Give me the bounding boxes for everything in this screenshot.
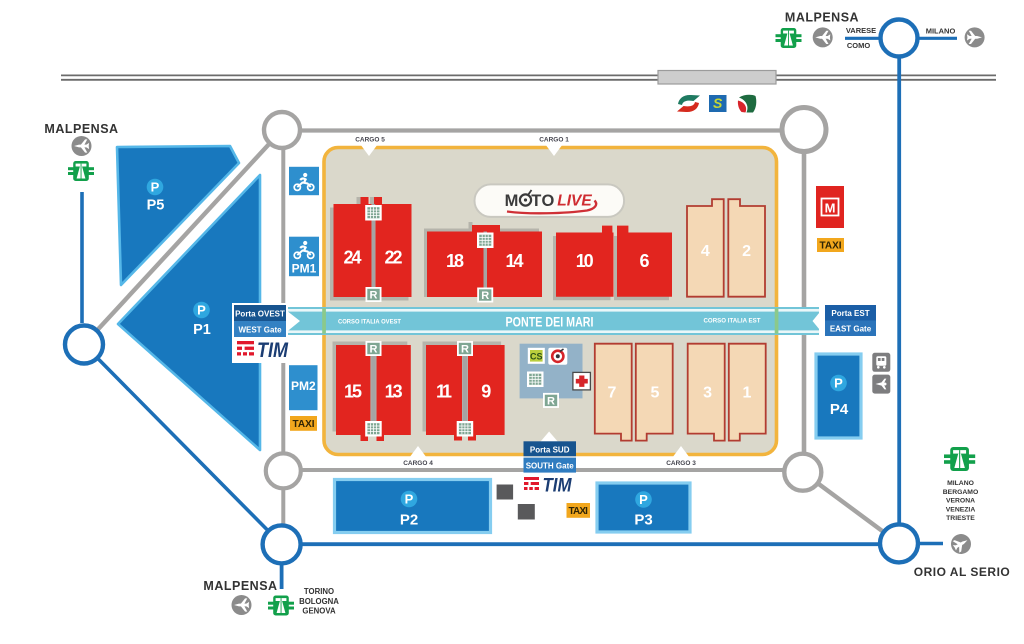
svg-text:MALPENSA: MALPENSA	[785, 11, 859, 25]
svg-text:24: 24	[344, 248, 362, 268]
svg-text:15: 15	[344, 382, 362, 402]
svg-text:TAXI: TAXI	[293, 419, 315, 430]
svg-text:18: 18	[446, 251, 464, 271]
svg-text:MALPENSA: MALPENSA	[44, 122, 118, 136]
svg-text:Porta SUD: Porta SUD	[530, 445, 570, 454]
svg-text:M: M	[825, 201, 836, 216]
svg-text:CARGO 5: CARGO 5	[355, 137, 385, 144]
svg-text:22: 22	[385, 248, 403, 268]
svg-text:1: 1	[743, 385, 752, 402]
svg-text:CARGO 4: CARGO 4	[403, 460, 433, 467]
svg-text:9: 9	[481, 382, 491, 402]
svg-text:11: 11	[436, 382, 452, 402]
svg-text:P2: P2	[400, 512, 418, 529]
svg-text:CARGO 3: CARGO 3	[666, 460, 696, 467]
svg-text:MILANO: MILANO	[926, 27, 956, 36]
svg-text:PM2: PM2	[291, 379, 316, 393]
svg-text:2: 2	[742, 243, 751, 260]
svg-text:PM1: PM1	[292, 262, 317, 276]
svg-text:VARESE: VARESE	[846, 26, 876, 35]
svg-text:LIVE: LIVE	[557, 193, 592, 210]
svg-text:10: 10	[576, 251, 594, 271]
svg-text:P1: P1	[193, 322, 211, 338]
svg-text:VERONA: VERONA	[946, 498, 975, 505]
svg-text:TORINO: TORINO	[304, 587, 334, 596]
svg-text:TIM: TIM	[543, 476, 573, 497]
svg-text:3: 3	[703, 385, 712, 402]
svg-text:13: 13	[385, 382, 403, 402]
svg-text:MALPENSA: MALPENSA	[203, 579, 277, 593]
svg-text:CARGO 1: CARGO 1	[539, 137, 569, 144]
svg-text:S: S	[713, 95, 723, 111]
svg-text:P5: P5	[147, 198, 165, 214]
svg-text:BOLOGNA: BOLOGNA	[299, 597, 339, 606]
svg-text:ORIO AL SERIO: ORIO AL SERIO	[914, 565, 1011, 579]
svg-text:MILANO: MILANO	[947, 480, 974, 487]
svg-text:COMO: COMO	[847, 41, 870, 50]
svg-text:P4: P4	[830, 401, 849, 418]
svg-text:P3: P3	[634, 512, 652, 529]
svg-text:7: 7	[608, 385, 617, 402]
svg-text:M: M	[505, 192, 519, 210]
svg-text:14: 14	[506, 251, 524, 271]
svg-text:4: 4	[701, 243, 710, 260]
svg-text:5: 5	[651, 385, 660, 402]
svg-text:BERGAMO: BERGAMO	[943, 489, 979, 496]
svg-text:VENEZIA: VENEZIA	[946, 506, 976, 513]
svg-text:TIM: TIM	[257, 339, 288, 362]
svg-text:TAXI: TAXI	[820, 241, 842, 252]
svg-text:PONTE DEI MARI: PONTE DEI MARI	[506, 315, 594, 330]
svg-text:CORSO ITALIA EST: CORSO ITALIA EST	[704, 318, 761, 325]
svg-text:6: 6	[639, 251, 649, 271]
svg-text:TO: TO	[531, 192, 555, 210]
svg-text:EAST Gate: EAST Gate	[830, 325, 872, 334]
svg-text:WEST Gate: WEST Gate	[238, 326, 282, 335]
svg-text:Porta OVEST: Porta OVEST	[235, 310, 285, 319]
svg-text:SOUTH Gate: SOUTH Gate	[526, 462, 575, 471]
svg-text:CORSO ITALIA OVEST: CORSO ITALIA OVEST	[338, 319, 401, 326]
svg-text:TAXI: TAXI	[568, 506, 588, 517]
svg-text:TRIESTE: TRIESTE	[946, 515, 975, 522]
svg-text:Porta EST: Porta EST	[831, 309, 869, 318]
svg-text:CS: CS	[530, 352, 543, 362]
svg-text:GENOVA: GENOVA	[302, 607, 336, 616]
